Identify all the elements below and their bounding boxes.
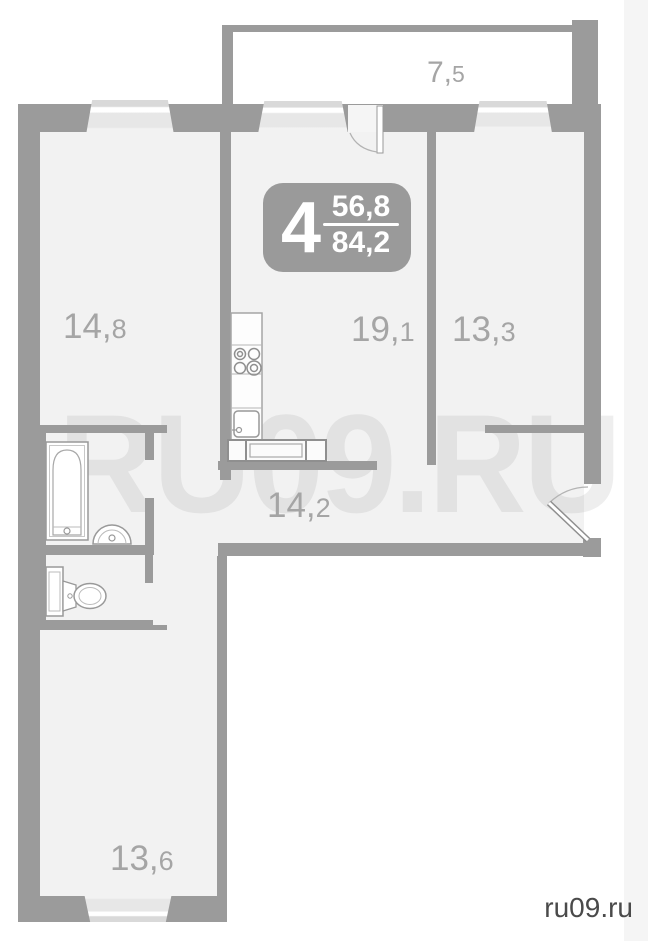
area-label-room-bottom: 13,6 (110, 841, 174, 876)
area-label-hall: 14,2 (267, 488, 331, 523)
wall-outer-right (584, 104, 601, 484)
window-living (258, 101, 348, 134)
wall-wc-bottom-ledge (153, 625, 167, 630)
site-label: ru09.ru (544, 892, 633, 924)
wall-rooms-divider (427, 132, 436, 465)
wall-bottom-room-right (217, 556, 227, 896)
window-room-bottom (84, 893, 172, 922)
wall-wet-left-liner (40, 425, 46, 630)
area-label-living: 19,1 (351, 312, 415, 347)
wall-bath-bottom (40, 545, 154, 555)
area-label-balcony: 7,5 (427, 58, 465, 88)
apartment-summary-badge: 4 56,8 84,2 (263, 183, 411, 272)
area-fraction: 56,8 84,2 (323, 193, 399, 257)
living-area-value: 56,8 (323, 193, 399, 221)
wall-balcony-left (222, 25, 233, 107)
wall-bath-right-upper (145, 425, 154, 460)
wall-hall-top (485, 425, 584, 433)
wall-balcony-top (222, 25, 572, 32)
wall-kitchen-divider (220, 132, 231, 480)
floor-plan: RU09.RU (0, 0, 648, 941)
wall-entrance-corner (583, 538, 601, 557)
window-room-left (86, 100, 174, 135)
wall-hall-bottom (218, 543, 584, 556)
total-area-value: 84,2 (323, 229, 399, 257)
rooms-count: 4 (281, 192, 321, 264)
window-room-right (474, 101, 552, 133)
area-label-room-right: 13,3 (452, 312, 516, 347)
area-label-room-left: 14,8 (63, 309, 127, 344)
floor-balcony (233, 32, 572, 106)
wall-wc-bottom (40, 620, 153, 630)
wall-kitchen-bottom (218, 461, 377, 470)
wall-outer-left (18, 104, 40, 922)
wall-wc-right (145, 555, 153, 583)
balcony-door-opening (348, 105, 383, 132)
page-edge-strip (624, 0, 648, 941)
wall-balcony-right (572, 20, 598, 107)
